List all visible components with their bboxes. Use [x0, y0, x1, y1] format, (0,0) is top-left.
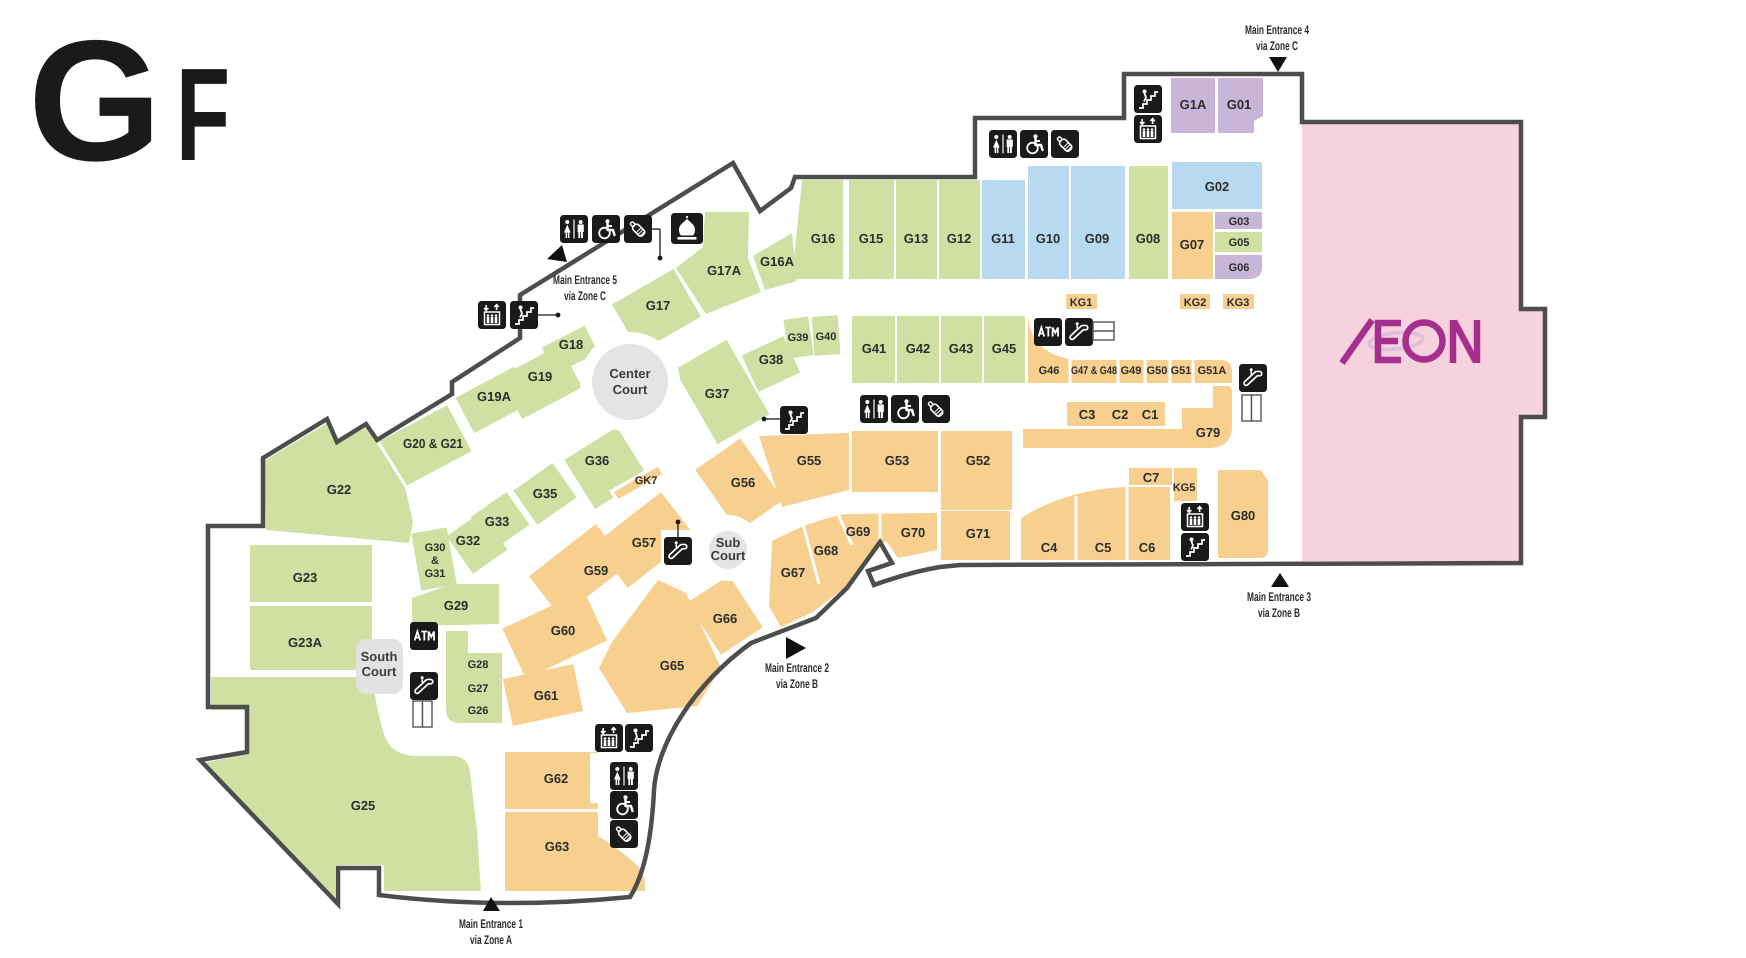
svg-text:G52: G52 [966, 453, 991, 468]
svg-text:G29: G29 [444, 598, 469, 613]
svg-text:G: G [28, 5, 162, 197]
svg-text:via Zone B: via Zone B [776, 677, 818, 691]
svg-text:G07: G07 [1180, 237, 1205, 252]
svg-text:C2: C2 [1112, 407, 1129, 422]
svg-text:G19: G19 [528, 369, 553, 384]
svg-text:G1A: G1A [1180, 97, 1207, 112]
svg-text:G01: G01 [1227, 97, 1252, 112]
svg-text:C1: C1 [1142, 407, 1159, 422]
svg-text:C7: C7 [1143, 470, 1160, 485]
svg-text:G57: G57 [632, 535, 657, 550]
svg-text:KG3: KG3 [1227, 297, 1250, 309]
svg-text:G62: G62 [544, 771, 569, 786]
svg-text:G22: G22 [327, 482, 352, 497]
svg-text:G71: G71 [966, 526, 991, 541]
svg-text:G20 & G21: G20 & G21 [403, 436, 463, 451]
svg-text:G60: G60 [551, 623, 576, 638]
svg-text:G30: G30 [425, 542, 446, 554]
svg-text:G16A: G16A [760, 254, 795, 269]
svg-text:Main Entrance 4: Main Entrance 4 [1245, 23, 1309, 37]
svg-text:South: South [361, 649, 398, 664]
svg-text:G59: G59 [584, 563, 609, 578]
svg-text:C6: C6 [1139, 540, 1156, 555]
svg-text:G19A: G19A [477, 389, 512, 404]
svg-text:G66: G66 [713, 611, 738, 626]
svg-text:G51: G51 [1171, 365, 1192, 377]
svg-text:G33: G33 [485, 514, 510, 529]
svg-text:G37: G37 [705, 386, 730, 401]
svg-text:G47 & G48: G47 & G48 [1071, 365, 1117, 377]
svg-text:via Zone B: via Zone B [1258, 606, 1300, 620]
svg-text:Court: Court [362, 664, 397, 679]
svg-text:G38: G38 [759, 352, 784, 367]
svg-text:G45: G45 [992, 341, 1017, 356]
svg-text:G51A: G51A [1198, 365, 1227, 377]
svg-text:G08: G08 [1136, 231, 1161, 246]
svg-text:G27: G27 [468, 683, 489, 695]
svg-text:G15: G15 [859, 231, 884, 246]
svg-text:via Zone C: via Zone C [564, 289, 606, 303]
svg-text:G56: G56 [731, 475, 756, 490]
svg-text:Center: Center [609, 366, 650, 381]
svg-text:GK7: GK7 [635, 475, 658, 487]
svg-text:G23A: G23A [288, 635, 323, 650]
svg-text:G40: G40 [816, 331, 837, 343]
svg-text:G12: G12 [947, 231, 972, 246]
svg-text:G26: G26 [468, 705, 489, 717]
svg-text:C4: C4 [1041, 540, 1058, 555]
svg-text:G67: G67 [781, 565, 806, 580]
svg-text:G32: G32 [456, 533, 481, 548]
svg-text:Court: Court [711, 548, 746, 563]
svg-text:G65: G65 [660, 658, 685, 673]
svg-text:G02: G02 [1205, 179, 1230, 194]
svg-text:G17A: G17A [707, 263, 742, 278]
svg-text:G36: G36 [585, 453, 610, 468]
svg-text:G06: G06 [1229, 262, 1250, 274]
svg-text:G43: G43 [949, 341, 974, 356]
svg-text:G41: G41 [862, 341, 887, 356]
svg-text:Main Entrance 2: Main Entrance 2 [765, 661, 829, 675]
svg-text:C5: C5 [1095, 540, 1112, 555]
svg-text:C3: C3 [1079, 407, 1096, 422]
svg-text:G53: G53 [885, 453, 910, 468]
svg-text:G13: G13 [904, 231, 929, 246]
svg-text:G68: G68 [814, 543, 839, 558]
svg-text:G18: G18 [559, 337, 584, 352]
svg-text:G11: G11 [991, 231, 1015, 246]
svg-text:G09: G09 [1085, 231, 1110, 246]
svg-text:G17: G17 [646, 298, 671, 313]
svg-text:G03: G03 [1229, 216, 1250, 228]
svg-text:G49: G49 [1121, 365, 1142, 377]
svg-text:Main Entrance 1: Main Entrance 1 [459, 917, 523, 931]
svg-text:G69: G69 [846, 524, 871, 539]
svg-text:G79: G79 [1196, 425, 1221, 440]
svg-text:G46: G46 [1039, 365, 1060, 377]
svg-text:G05: G05 [1229, 237, 1250, 249]
svg-text:G10: G10 [1036, 231, 1061, 246]
svg-text:G42: G42 [906, 341, 931, 356]
svg-text:G61: G61 [534, 688, 559, 703]
svg-text:G25: G25 [351, 798, 376, 813]
svg-text:G23: G23 [293, 570, 318, 585]
svg-text:Main Entrance 3: Main Entrance 3 [1247, 590, 1311, 604]
svg-text:KG5: KG5 [1173, 482, 1196, 494]
svg-text:G31: G31 [425, 568, 446, 580]
svg-text:F: F [176, 41, 230, 188]
svg-text:via Zone C: via Zone C [1256, 39, 1298, 53]
svg-text:Court: Court [613, 382, 648, 397]
svg-text:G50: G50 [1147, 365, 1168, 377]
svg-text:&: & [431, 555, 439, 567]
svg-text:G39: G39 [788, 332, 809, 344]
svg-text:via Zone A: via Zone A [470, 933, 512, 947]
svg-text:G35: G35 [533, 486, 558, 501]
svg-text:G55: G55 [797, 453, 822, 468]
svg-text:Main Entrance 5: Main Entrance 5 [553, 273, 617, 287]
svg-text:KG2: KG2 [1184, 297, 1207, 309]
svg-text:KG1: KG1 [1070, 297, 1093, 309]
svg-text:G28: G28 [468, 659, 489, 671]
svg-text:G16: G16 [811, 231, 836, 246]
svg-text:G70: G70 [901, 525, 926, 540]
svg-text:G63: G63 [545, 839, 570, 854]
svg-text:G80: G80 [1231, 508, 1256, 523]
